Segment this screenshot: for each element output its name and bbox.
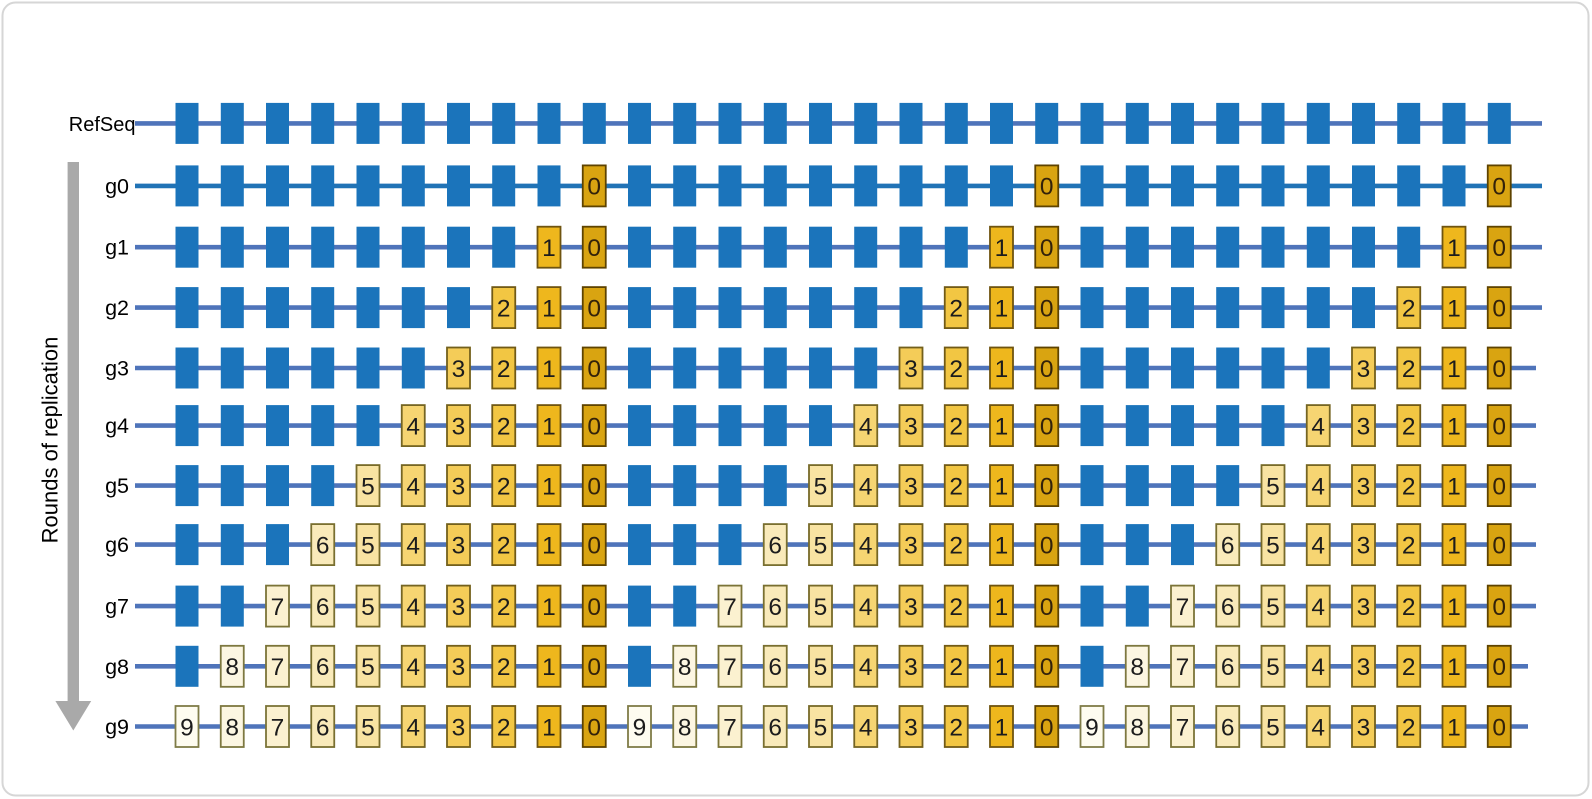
svg-text:1: 1: [1447, 473, 1461, 500]
svg-text:1: 1: [542, 413, 556, 440]
svg-text:5: 5: [361, 532, 375, 559]
svg-text:3: 3: [904, 594, 918, 621]
svg-text:2: 2: [949, 473, 963, 500]
svg-text:0: 0: [587, 714, 601, 741]
svg-text:7: 7: [1176, 594, 1190, 621]
svg-text:0: 0: [1492, 473, 1506, 500]
svg-text:9: 9: [180, 714, 194, 741]
svg-text:1: 1: [995, 235, 1009, 262]
svg-text:0: 0: [1492, 532, 1506, 559]
svg-text:3: 3: [904, 654, 918, 681]
svg-text:6: 6: [768, 532, 782, 559]
svg-text:3: 3: [452, 654, 466, 681]
svg-text:2: 2: [1402, 473, 1416, 500]
svg-text:g3: g3: [105, 357, 129, 381]
svg-text:5: 5: [814, 532, 828, 559]
svg-text:8: 8: [678, 714, 692, 741]
svg-text:0: 0: [1040, 174, 1054, 201]
svg-text:4: 4: [859, 413, 873, 440]
svg-text:0: 0: [1492, 295, 1506, 322]
svg-text:2: 2: [497, 654, 511, 681]
svg-text:0: 0: [1492, 235, 1506, 262]
svg-text:5: 5: [1266, 532, 1280, 559]
svg-text:4: 4: [859, 594, 873, 621]
svg-text:2: 2: [1402, 654, 1416, 681]
svg-text:4: 4: [859, 532, 873, 559]
svg-text:3: 3: [904, 413, 918, 440]
svg-text:4: 4: [1311, 473, 1325, 500]
svg-text:5: 5: [814, 473, 828, 500]
svg-text:5: 5: [814, 714, 828, 741]
svg-text:2: 2: [497, 532, 511, 559]
svg-text:3: 3: [904, 356, 918, 383]
svg-text:2: 2: [949, 714, 963, 741]
svg-text:1: 1: [995, 714, 1009, 741]
svg-text:8: 8: [678, 654, 692, 681]
svg-text:0: 0: [587, 532, 601, 559]
svg-text:2: 2: [1402, 413, 1416, 440]
svg-text:3: 3: [452, 594, 466, 621]
svg-text:6: 6: [1221, 594, 1235, 621]
svg-text:0: 0: [587, 594, 601, 621]
svg-text:0: 0: [587, 356, 601, 383]
svg-text:1: 1: [542, 654, 556, 681]
svg-text:1: 1: [542, 714, 556, 741]
svg-text:7: 7: [1176, 714, 1190, 741]
svg-text:8: 8: [1130, 714, 1144, 741]
svg-text:2: 2: [1402, 356, 1416, 383]
svg-text:0: 0: [1492, 714, 1506, 741]
svg-text:1: 1: [1447, 235, 1461, 262]
svg-text:2: 2: [497, 594, 511, 621]
svg-text:1: 1: [542, 594, 556, 621]
svg-text:1: 1: [1447, 356, 1461, 383]
svg-text:5: 5: [1266, 714, 1280, 741]
svg-text:2: 2: [497, 413, 511, 440]
svg-text:5: 5: [1266, 654, 1280, 681]
svg-text:2: 2: [1402, 714, 1416, 741]
svg-text:2: 2: [949, 356, 963, 383]
svg-text:3: 3: [452, 356, 466, 383]
svg-text:1: 1: [542, 295, 556, 322]
svg-text:1: 1: [995, 356, 1009, 383]
svg-text:g6: g6: [105, 533, 129, 557]
svg-text:4: 4: [406, 413, 420, 440]
svg-text:0: 0: [1040, 654, 1054, 681]
svg-text:6: 6: [316, 532, 330, 559]
svg-text:6: 6: [1221, 714, 1235, 741]
svg-text:7: 7: [271, 654, 285, 681]
svg-text:g4: g4: [105, 414, 129, 438]
svg-text:6: 6: [1221, 654, 1235, 681]
svg-text:4: 4: [1311, 714, 1325, 741]
svg-text:g0: g0: [105, 174, 129, 198]
svg-text:2: 2: [949, 295, 963, 322]
svg-text:2: 2: [1402, 594, 1416, 621]
svg-text:3: 3: [1357, 532, 1371, 559]
svg-text:5: 5: [814, 654, 828, 681]
svg-text:4: 4: [1311, 654, 1325, 681]
svg-text:5: 5: [361, 714, 375, 741]
svg-text:5: 5: [361, 654, 375, 681]
svg-text:1: 1: [995, 295, 1009, 322]
svg-text:7: 7: [723, 654, 737, 681]
svg-text:3: 3: [904, 473, 918, 500]
svg-text:3: 3: [452, 473, 466, 500]
svg-text:3: 3: [452, 413, 466, 440]
svg-text:5: 5: [361, 473, 375, 500]
svg-text:3: 3: [1357, 714, 1371, 741]
svg-text:8: 8: [1130, 654, 1144, 681]
svg-text:4: 4: [406, 714, 420, 741]
svg-text:3: 3: [452, 532, 466, 559]
svg-text:4: 4: [1311, 413, 1325, 440]
svg-text:4: 4: [406, 594, 420, 621]
svg-text:4: 4: [859, 654, 873, 681]
svg-text:8: 8: [225, 714, 239, 741]
svg-text:7: 7: [1176, 654, 1190, 681]
svg-text:0: 0: [1040, 295, 1054, 322]
svg-text:4: 4: [1311, 594, 1325, 621]
svg-text:0: 0: [587, 295, 601, 322]
svg-text:4: 4: [406, 654, 420, 681]
svg-text:1: 1: [1447, 714, 1461, 741]
svg-text:1: 1: [542, 473, 556, 500]
svg-text:1: 1: [542, 532, 556, 559]
svg-text:1: 1: [542, 235, 556, 262]
svg-text:4: 4: [406, 532, 420, 559]
svg-text:g2: g2: [105, 296, 129, 320]
svg-text:5: 5: [814, 594, 828, 621]
svg-text:1: 1: [1447, 295, 1461, 322]
svg-text:6: 6: [768, 714, 782, 741]
svg-text:7: 7: [271, 714, 285, 741]
svg-text:6: 6: [768, 654, 782, 681]
svg-text:g9: g9: [105, 715, 129, 739]
svg-text:4: 4: [859, 473, 873, 500]
svg-text:0: 0: [1492, 356, 1506, 383]
svg-text:0: 0: [1040, 356, 1054, 383]
svg-text:1: 1: [542, 356, 556, 383]
svg-text:2: 2: [949, 532, 963, 559]
svg-text:3: 3: [904, 714, 918, 741]
svg-text:2: 2: [497, 714, 511, 741]
svg-text:0: 0: [1040, 532, 1054, 559]
svg-text:0: 0: [1040, 235, 1054, 262]
svg-text:0: 0: [1040, 473, 1054, 500]
svg-text:2: 2: [949, 594, 963, 621]
svg-text:1: 1: [1447, 594, 1461, 621]
svg-text:1: 1: [995, 532, 1009, 559]
svg-text:3: 3: [452, 714, 466, 741]
svg-text:9: 9: [633, 714, 647, 741]
svg-text:1: 1: [995, 413, 1009, 440]
svg-text:6: 6: [316, 594, 330, 621]
svg-text:2: 2: [497, 356, 511, 383]
svg-text:g1: g1: [105, 236, 129, 260]
svg-text:0: 0: [1040, 413, 1054, 440]
svg-text:1: 1: [995, 473, 1009, 500]
svg-text:4: 4: [1311, 532, 1325, 559]
svg-text:1: 1: [1447, 532, 1461, 559]
svg-text:5: 5: [1266, 594, 1280, 621]
svg-text:3: 3: [1357, 654, 1371, 681]
svg-text:1: 1: [1447, 654, 1461, 681]
svg-text:0: 0: [1492, 174, 1506, 201]
svg-text:1: 1: [1447, 413, 1461, 440]
svg-text:6: 6: [316, 654, 330, 681]
svg-text:0: 0: [1492, 413, 1506, 440]
svg-text:5: 5: [361, 594, 375, 621]
svg-text:8: 8: [225, 654, 239, 681]
svg-text:g7: g7: [105, 595, 129, 619]
svg-text:Rounds of replication: Rounds of replication: [38, 337, 63, 544]
svg-text:0: 0: [587, 235, 601, 262]
svg-text:7: 7: [271, 594, 285, 621]
svg-text:g5: g5: [105, 474, 129, 498]
svg-text:9: 9: [1085, 714, 1099, 741]
svg-text:0: 0: [587, 473, 601, 500]
svg-text:5: 5: [1266, 473, 1280, 500]
svg-text:0: 0: [1492, 654, 1506, 681]
svg-text:2: 2: [1402, 532, 1416, 559]
svg-text:g8: g8: [105, 655, 129, 679]
svg-text:2: 2: [1402, 295, 1416, 322]
svg-text:2: 2: [497, 295, 511, 322]
svg-text:6: 6: [316, 714, 330, 741]
svg-text:3: 3: [1357, 594, 1371, 621]
svg-text:6: 6: [1221, 532, 1235, 559]
svg-text:4: 4: [859, 714, 873, 741]
svg-text:0: 0: [587, 174, 601, 201]
svg-text:2: 2: [497, 473, 511, 500]
svg-text:6: 6: [768, 594, 782, 621]
svg-text:RefSeq: RefSeq: [69, 114, 136, 136]
svg-text:1: 1: [995, 654, 1009, 681]
svg-text:3: 3: [1357, 473, 1371, 500]
svg-text:0: 0: [1040, 594, 1054, 621]
svg-text:0: 0: [587, 654, 601, 681]
svg-text:7: 7: [723, 714, 737, 741]
svg-text:0: 0: [1040, 714, 1054, 741]
svg-text:3: 3: [1357, 413, 1371, 440]
svg-text:3: 3: [904, 532, 918, 559]
svg-text:7: 7: [723, 594, 737, 621]
svg-text:2: 2: [949, 654, 963, 681]
svg-text:3: 3: [1357, 356, 1371, 383]
svg-text:4: 4: [406, 473, 420, 500]
svg-text:0: 0: [587, 413, 601, 440]
svg-text:0: 0: [1492, 594, 1506, 621]
svg-text:1: 1: [995, 594, 1009, 621]
svg-text:2: 2: [949, 413, 963, 440]
